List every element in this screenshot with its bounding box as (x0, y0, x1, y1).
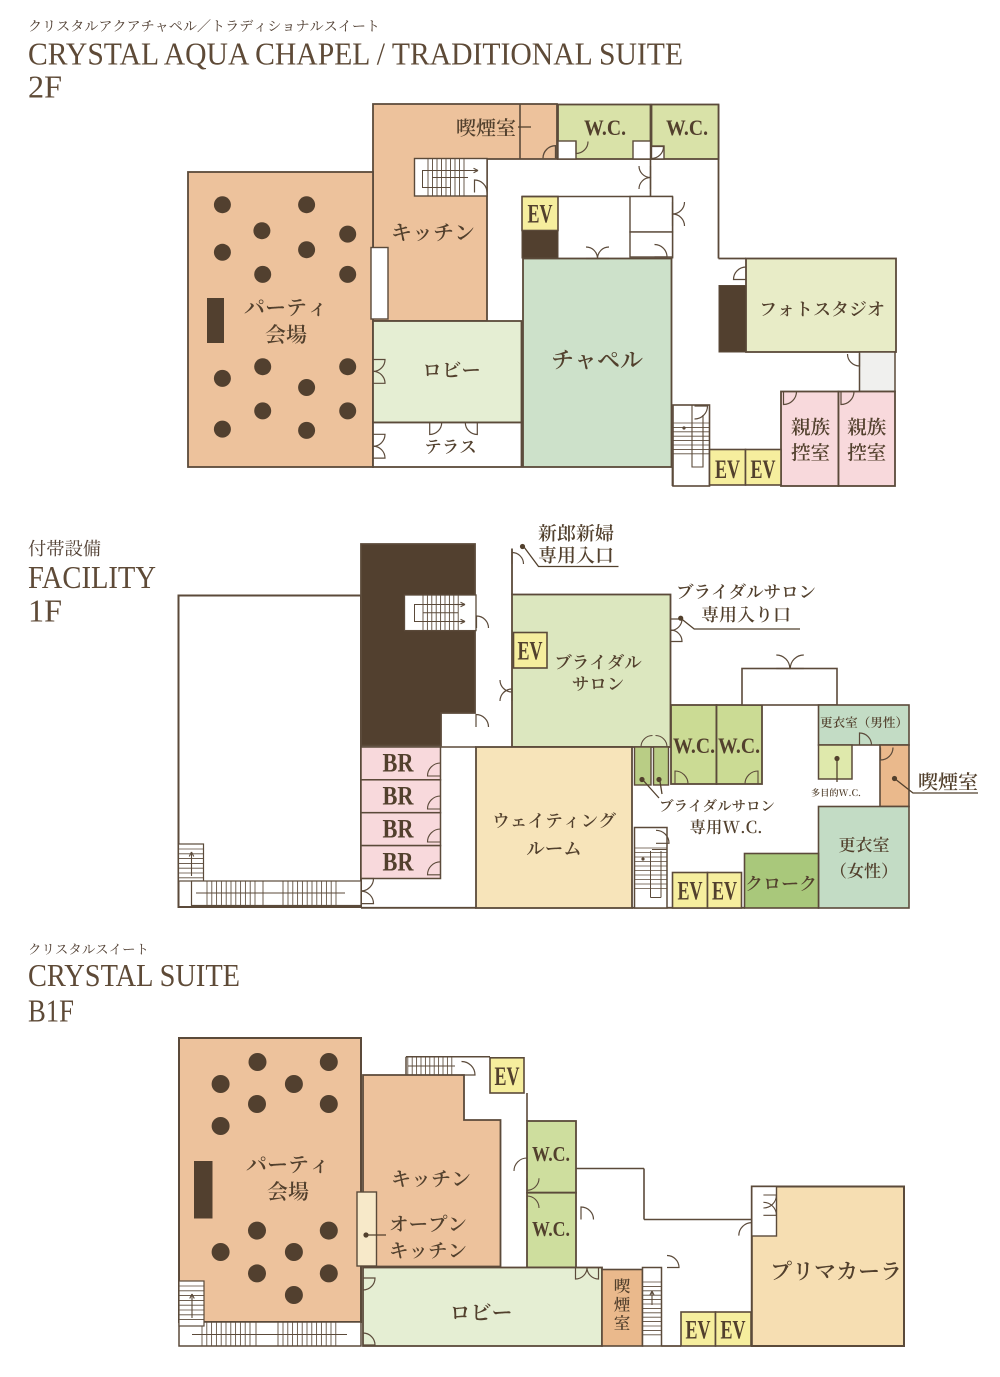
svg-text:EV: EV (518, 637, 543, 666)
svg-text:BR: BR (383, 815, 414, 844)
svg-text:W.C.: W.C. (666, 115, 708, 140)
svg-text:2F: 2F (28, 69, 62, 105)
svg-text:EV: EV (751, 455, 776, 484)
svg-text:CRYSTAL AQUA CHAPEL / TRADITIO: CRYSTAL AQUA CHAPEL / TRADITIONAL SUITE (28, 36, 683, 72)
svg-text:EV: EV (495, 1062, 520, 1091)
svg-text:FACILITY: FACILITY (28, 559, 156, 595)
svg-text:W.C.: W.C. (532, 1217, 570, 1241)
svg-text:EV: EV (721, 1316, 746, 1345)
svg-text:1F: 1F (28, 593, 62, 629)
svg-text:EV: EV (712, 877, 737, 906)
svg-text:EV: EV (715, 455, 740, 484)
svg-text:B1F: B1F (28, 993, 74, 1029)
svg-text:W.C.: W.C. (673, 733, 715, 758)
svg-text:BR: BR (383, 749, 414, 778)
svg-text:W.C.: W.C. (718, 733, 760, 758)
svg-text:BR: BR (383, 782, 414, 811)
svg-text:EV: EV (528, 200, 553, 229)
svg-text:EV: EV (686, 1316, 711, 1345)
svg-text:W.C.: W.C. (532, 1142, 570, 1166)
svg-text:CRYSTAL SUITE: CRYSTAL SUITE (28, 957, 240, 993)
svg-text:W.C.: W.C. (584, 115, 626, 140)
svg-text:BR: BR (383, 848, 414, 877)
svg-text:EV: EV (678, 877, 703, 906)
